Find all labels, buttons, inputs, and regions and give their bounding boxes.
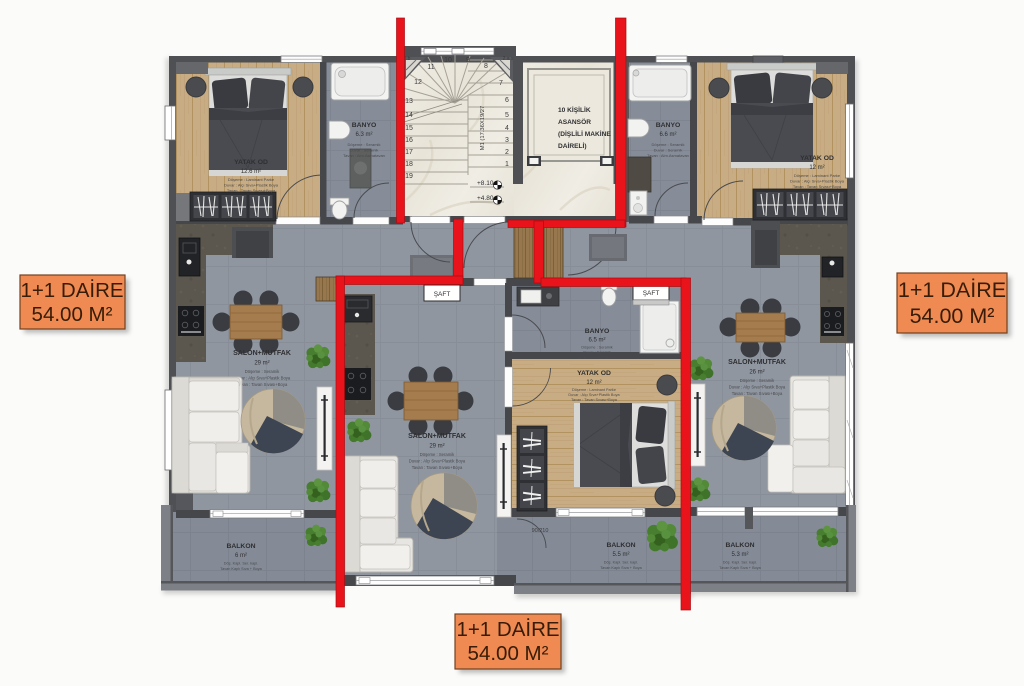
svg-text:17: 17 (405, 149, 413, 156)
svg-text:Tavan : Tavan Sıvası+Boya: Tavan : Tavan Sıvası+Boya (793, 184, 842, 189)
svg-text:9: 9 (466, 57, 470, 64)
svg-text:2.a.s: 2.a.s (503, 56, 514, 62)
svg-text:5.5 m²: 5.5 m² (612, 552, 629, 558)
svg-text:12: 12 (414, 79, 422, 86)
svg-text:Döşeme : Seramik: Döşeme : Seramik (348, 142, 381, 147)
svg-text:BALKON: BALKON (725, 542, 754, 549)
svg-text:Duvar : Alçı Sıva+Plastik Boya: Duvar : Alçı Sıva+Plastik Boya (790, 179, 845, 184)
svg-text:10 KİŞİLİK: 10 KİŞİLİK (558, 106, 591, 114)
svg-text:Döşeme : Seramik: Döşeme : Seramik (740, 378, 775, 383)
svg-text:Tavan : Alm.Asmatavan: Tavan : Alm.Asmatavan (647, 153, 689, 158)
svg-text:BANYO: BANYO (352, 122, 377, 129)
svg-text:Tavan : Tavan Sıvası+Boya: Tavan : Tavan Sıvası+Boya (412, 465, 463, 470)
svg-text:ŞAFT: ŞAFT (434, 291, 451, 298)
svg-text:ŞAFT: ŞAFT (643, 290, 660, 297)
svg-text:Tavan : Alm.Asmatavan: Tavan : Alm.Asmatavan (577, 356, 617, 360)
svg-text:26 m²: 26 m² (749, 370, 764, 376)
svg-text:12.6 m²: 12.6 m² (241, 169, 261, 175)
svg-text:M1 (17.36X19/27: M1 (17.36X19/27 (480, 106, 486, 150)
svg-text:1+1 DAİRE: 1+1 DAİRE (898, 278, 1006, 302)
svg-text:6: 6 (505, 97, 509, 104)
svg-text:BALKON: BALKON (606, 542, 635, 549)
svg-text:Duvar : Seramik: Duvar : Seramik (654, 148, 683, 153)
svg-text:5: 5 (505, 112, 509, 119)
svg-text:Döşeme : Seramik: Döşeme : Seramik (652, 142, 685, 147)
svg-text:YATAK OD: YATAK OD (800, 155, 834, 162)
svg-text:14: 14 (405, 112, 413, 119)
svg-text:BALKON: BALKON (226, 543, 255, 550)
svg-text:1+1 DAİRE: 1+1 DAİRE (456, 618, 559, 641)
svg-text:Duvar : Alçı Sıva+Plastik Boya: Duvar : Alçı Sıva+Plastik Boya (409, 459, 466, 464)
svg-text:12 m²: 12 m² (586, 380, 601, 386)
svg-text:+8.10: +8.10 (477, 180, 494, 187)
svg-text:1: 1 (505, 161, 509, 168)
svg-text:Tavan : Tavan Sıvası+Boya: Tavan : Tavan Sıvası+Boya (227, 188, 276, 193)
svg-text:10: 10 (444, 57, 452, 64)
svg-text:SALON+MUTFAK: SALON+MUTFAK (408, 433, 466, 440)
svg-text:6 m²: 6 m² (235, 553, 247, 559)
svg-text:YATAK OD: YATAK OD (577, 370, 611, 377)
svg-text:7: 7 (499, 80, 503, 87)
svg-text:Döşeme : Laminant Parke: Döşeme : Laminant Parke (794, 173, 841, 178)
svg-text:BANYO: BANYO (585, 328, 610, 335)
svg-text:5.3 m²: 5.3 m² (731, 552, 748, 558)
svg-text:Tavan Kaplı Sıva + Boya: Tavan Kaplı Sıva + Boya (719, 566, 761, 570)
svg-text:8: 8 (484, 63, 488, 70)
svg-text:Duvar : Alçı Sıva+Plastik Boya: Duvar : Alçı Sıva+Plastik Boya (568, 393, 620, 397)
svg-text:ASANSÖR: ASANSÖR (558, 117, 591, 126)
svg-text:3: 3 (505, 137, 509, 144)
svg-text:Döşeme : Laminant Parke: Döşeme : Laminant Parke (228, 177, 275, 182)
svg-text:2: 2 (505, 149, 509, 156)
svg-text:29 m²: 29 m² (429, 444, 444, 450)
svg-text:Duvar : Alçı Sıva+Plastik Boya: Duvar : Alçı Sıva+Plastik Boya (729, 385, 786, 390)
svg-text:15: 15 (405, 125, 413, 132)
svg-text:19: 19 (405, 173, 413, 180)
svg-text:SALON+MUTFAK: SALON+MUTFAK (233, 350, 291, 357)
svg-text:+4.80: +4.80 (477, 195, 494, 202)
svg-text:Tavan Kaplı Sıva + Boya: Tavan Kaplı Sıva + Boya (600, 566, 642, 570)
svg-text:11: 11 (427, 64, 434, 71)
svg-text:16: 16 (405, 137, 413, 144)
svg-text:54.00 M²: 54.00 M² (468, 642, 549, 665)
svg-text:6.6 m²: 6.6 m² (659, 132, 676, 138)
svg-text:54.00 M²: 54.00 M² (910, 304, 995, 328)
svg-text:Tavan : Tavan Sıvası+Boya: Tavan : Tavan Sıvası+Boya (732, 391, 783, 396)
svg-text:Tavan : Alm.Asmatavan: Tavan : Alm.Asmatavan (343, 153, 385, 158)
svg-text:6.5 m²: 6.5 m² (588, 338, 605, 344)
svg-text:Döşeme : Seramik: Döşeme : Seramik (245, 369, 280, 374)
svg-text:BANYO: BANYO (656, 122, 681, 129)
svg-text:YATAK OD: YATAK OD (234, 159, 268, 166)
svg-text:Döşeme : Seramik: Döşeme : Seramik (420, 452, 455, 457)
svg-text:Tavan Kaplı Sıva + Boya: Tavan Kaplı Sıva + Boya (220, 567, 262, 571)
svg-text:Tavan : Tavan Sıvası+Boya: Tavan : Tavan Sıvası+Boya (571, 398, 618, 402)
svg-text:54.00 M²: 54.00 M² (32, 303, 113, 326)
svg-text:Döşeme : Seramik: Döşeme : Seramik (581, 346, 612, 350)
svg-text:1+1 DAİRE: 1+1 DAİRE (20, 279, 123, 302)
svg-text:Döşeme : Laminant Parke: Döşeme : Laminant Parke (572, 388, 616, 392)
svg-text:12 m²: 12 m² (809, 165, 824, 171)
svg-text:Tavan : Tavan Sıvası+Boya: Tavan : Tavan Sıvası+Boya (237, 382, 288, 387)
svg-text:(DİŞLİLİ MAKİNE: (DİŞLİLİ MAKİNE (558, 130, 611, 138)
svg-text:Döş. Kapl. Ser. kapl.: Döş. Kapl. Ser. kapl. (224, 562, 258, 566)
svg-text:6.3 m²: 6.3 m² (355, 132, 372, 138)
svg-text:18: 18 (405, 161, 413, 168)
svg-text:Duvar : Seramik: Duvar : Seramik (583, 351, 610, 355)
svg-text:DAİRELİ): DAİRELİ) (558, 142, 587, 150)
svg-text:Döş. Kapl. Ser. kapl.: Döş. Kapl. Ser. kapl. (723, 561, 757, 565)
svg-text:Döş. Kapl. Ser. kapl.: Döş. Kapl. Ser. kapl. (604, 561, 638, 565)
svg-text:Duvar : Alçı Sıva+Plastik Boya: Duvar : Alçı Sıva+Plastik Boya (224, 183, 279, 188)
svg-text:Duvar : Seramik: Duvar : Seramik (350, 148, 379, 153)
svg-text:SALON+MUTFAK: SALON+MUTFAK (728, 359, 786, 366)
svg-text:29 m²: 29 m² (254, 361, 269, 367)
svg-text:13: 13 (405, 98, 413, 105)
svg-text:4: 4 (505, 125, 509, 132)
